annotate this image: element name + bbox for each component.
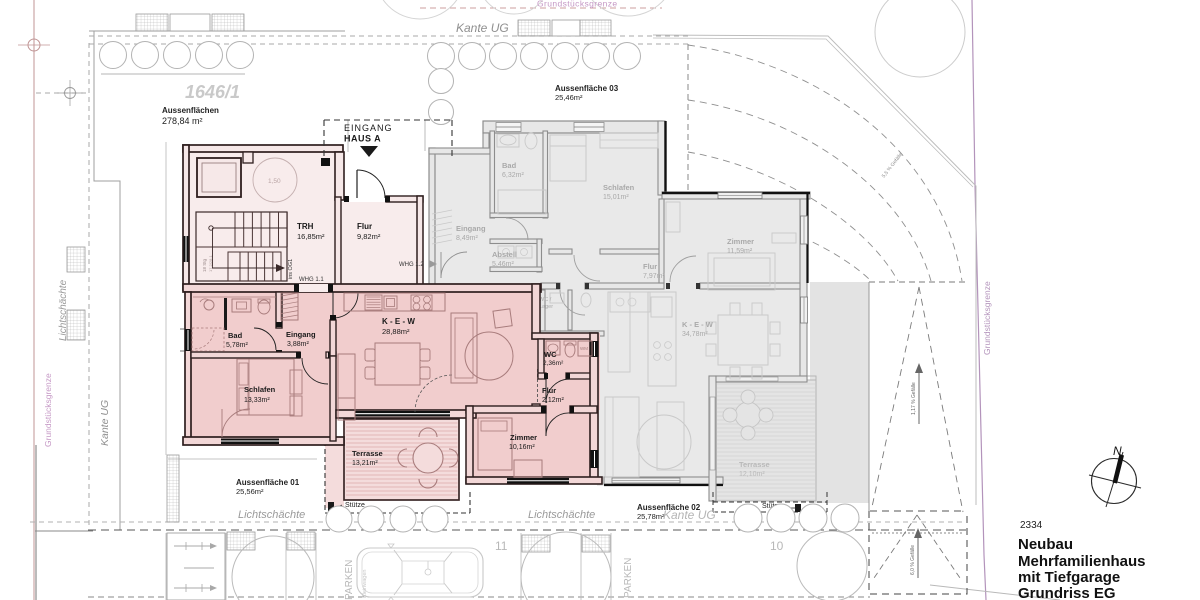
svg-text:Mehrfamilienhaus: Mehrfamilienhaus bbox=[1018, 553, 1146, 570]
svg-text:9,82m²: 9,82m² bbox=[357, 232, 381, 241]
svg-text:Lichtschächte: Lichtschächte bbox=[528, 509, 595, 521]
svg-text:5,46m²: 5,46m² bbox=[492, 261, 514, 268]
svg-text:1,17 % Gefälle: 1,17 % Gefälle bbox=[911, 382, 917, 415]
svg-text:Kante UG: Kante UG bbox=[663, 508, 716, 522]
svg-text:25,46m²: 25,46m² bbox=[555, 93, 583, 102]
svg-text:6,32m²: 6,32m² bbox=[502, 172, 524, 179]
svg-text:ins OG1: ins OG1 bbox=[288, 259, 294, 279]
svg-text:Kante UG: Kante UG bbox=[456, 21, 509, 35]
svg-text:17,2/28,1: 17,2/28,1 bbox=[208, 255, 213, 272]
svg-text:WHG 1.2: WHG 1.2 bbox=[399, 262, 424, 268]
svg-text:PARKEN: PARKEN bbox=[344, 560, 355, 600]
svg-text:6,0 % Gefälle: 6,0 % Gefälle bbox=[910, 545, 916, 575]
svg-text:HAUS A: HAUS A bbox=[344, 134, 381, 144]
svg-text:Lichtschächte: Lichtschächte bbox=[58, 279, 69, 341]
svg-text:K - E - W: K - E - W bbox=[682, 320, 714, 329]
svg-text:K - E - W: K - E - W bbox=[382, 317, 415, 326]
svg-text:Eingang: Eingang bbox=[456, 224, 486, 233]
svg-text:Grundriss EG: Grundriss EG bbox=[1018, 585, 1116, 600]
svg-text:Flur: Flur bbox=[542, 386, 556, 395]
svg-text:WC: WC bbox=[544, 350, 557, 359]
svg-text:Aussenfläche 03: Aussenfläche 03 bbox=[555, 84, 619, 93]
svg-text:Grundstücksgrenze: Grundstücksgrenze bbox=[982, 281, 992, 355]
svg-text:1646/1: 1646/1 bbox=[185, 82, 240, 102]
svg-text:Schlafen: Schlafen bbox=[244, 385, 276, 394]
svg-text:Schlafen: Schlafen bbox=[603, 183, 635, 192]
svg-text:10: 10 bbox=[770, 539, 784, 553]
svg-text:Aussenflächen: Aussenflächen bbox=[162, 106, 219, 115]
svg-text:Grundstücksgrenze: Grundstücksgrenze bbox=[537, 0, 618, 9]
svg-text:Bad: Bad bbox=[502, 161, 517, 170]
svg-text:12,10m²: 12,10m² bbox=[739, 471, 765, 478]
svg-text:WHG 1.1: WHG 1.1 bbox=[299, 277, 324, 283]
svg-text:13,33m²: 13,33m² bbox=[244, 397, 270, 404]
svg-text:15,01m²: 15,01m² bbox=[603, 194, 629, 201]
svg-text:Flur: Flur bbox=[643, 262, 657, 271]
svg-text:Stütze: Stütze bbox=[345, 502, 365, 509]
svg-text:WM: WM bbox=[580, 346, 588, 351]
svg-text:PARKEN: PARKEN bbox=[623, 558, 634, 598]
svg-text:Lichtschächte: Lichtschächte bbox=[238, 509, 305, 521]
svg-text:5,78m²: 5,78m² bbox=[226, 342, 248, 349]
svg-text:Abstell: Abstell bbox=[492, 250, 517, 259]
svg-text:Eingang: Eingang bbox=[286, 330, 316, 339]
svg-text:Bad: Bad bbox=[228, 331, 243, 340]
svg-text:EINGANG: EINGANG bbox=[344, 123, 393, 133]
svg-text:Terrasse: Terrasse bbox=[352, 449, 383, 458]
svg-text:13,21m²: 13,21m² bbox=[352, 460, 378, 467]
svg-text:25,78m²: 25,78m² bbox=[637, 512, 665, 521]
svg-text:Grundstücksgrenze: Grundstücksgrenze bbox=[43, 373, 53, 447]
svg-text:1,50: 1,50 bbox=[268, 178, 281, 185]
svg-text:Kleinwagen: Kleinwagen bbox=[362, 570, 368, 598]
svg-text:18 Stg: 18 Stg bbox=[202, 258, 207, 272]
svg-text:278,84 m²: 278,84 m² bbox=[162, 116, 203, 126]
svg-text:N: N bbox=[1113, 444, 1122, 458]
svg-text:7,97m²: 7,97m² bbox=[643, 273, 665, 280]
svg-text:2,12m²: 2,12m² bbox=[542, 397, 564, 404]
svg-text:28,88m²: 28,88m² bbox=[382, 327, 410, 336]
svg-text:Aussenfläche 01: Aussenfläche 01 bbox=[236, 478, 300, 487]
svg-text:Flur: Flur bbox=[357, 222, 372, 231]
svg-text:16,85m²: 16,85m² bbox=[297, 232, 325, 241]
svg-text:Terrasse: Terrasse bbox=[739, 460, 770, 469]
svg-text:2,36m²: 2,36m² bbox=[543, 360, 564, 367]
svg-text:11: 11 bbox=[495, 539, 508, 553]
svg-text:34,78m²: 34,78m² bbox=[682, 331, 708, 338]
svg-text:TRH: TRH bbox=[297, 222, 314, 231]
svg-text:8,49m²: 8,49m² bbox=[456, 235, 478, 242]
svg-text:Zimmer: Zimmer bbox=[727, 237, 754, 246]
svg-text:10,16m²: 10,16m² bbox=[509, 444, 535, 451]
svg-text:Neubau: Neubau bbox=[1018, 536, 1073, 553]
svg-text:WC /: WC / bbox=[539, 297, 552, 303]
svg-text:2334: 2334 bbox=[1020, 520, 1043, 531]
svg-text:Zimmer: Zimmer bbox=[510, 433, 537, 442]
svg-text:mit Tiefgarage: mit Tiefgarage bbox=[1018, 569, 1120, 586]
svg-text:25,56m²: 25,56m² bbox=[236, 487, 264, 496]
svg-text:3,88m²: 3,88m² bbox=[287, 341, 309, 348]
svg-text:11,59m²: 11,59m² bbox=[727, 248, 753, 255]
svg-text:Kante UG: Kante UG bbox=[99, 400, 111, 446]
svg-text:Lager: Lager bbox=[539, 304, 553, 310]
